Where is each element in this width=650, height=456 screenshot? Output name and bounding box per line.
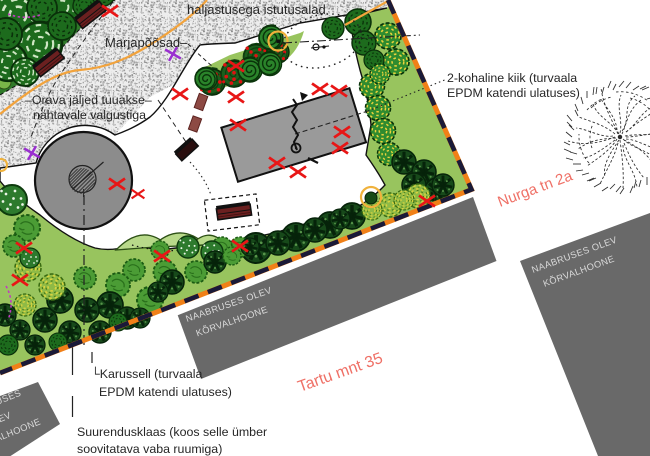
svg-text:haljastusega istutusalad: haljastusega istutusalad	[187, 2, 326, 17]
svg-text:└Karussell (turvaala: └Karussell (turvaala	[91, 366, 202, 381]
svg-text:nähtavale valgustiga: nähtavale valgustiga	[33, 108, 146, 122]
svg-text:soovitatava vaba ruumiga): soovitatava vaba ruumiga)	[77, 442, 222, 456]
svg-text:2-kohaline kiik (turvaala: 2-kohaline kiik (turvaala	[447, 71, 577, 85]
svg-text:Suurendusklaas (koos selle ümb: Suurendusklaas (koos selle ümber	[77, 425, 267, 439]
svg-text:–Orava jäljed tuuakse–: –Orava jäljed tuuakse–	[25, 93, 152, 107]
svg-text:EPDM katendi ulatuses): EPDM katendi ulatuses)	[99, 385, 232, 399]
svg-text:Marjapõõsad–: Marjapõõsad–	[105, 35, 188, 50]
svg-text:EPDM katendi ulatuses): EPDM katendi ulatuses)	[447, 86, 580, 100]
